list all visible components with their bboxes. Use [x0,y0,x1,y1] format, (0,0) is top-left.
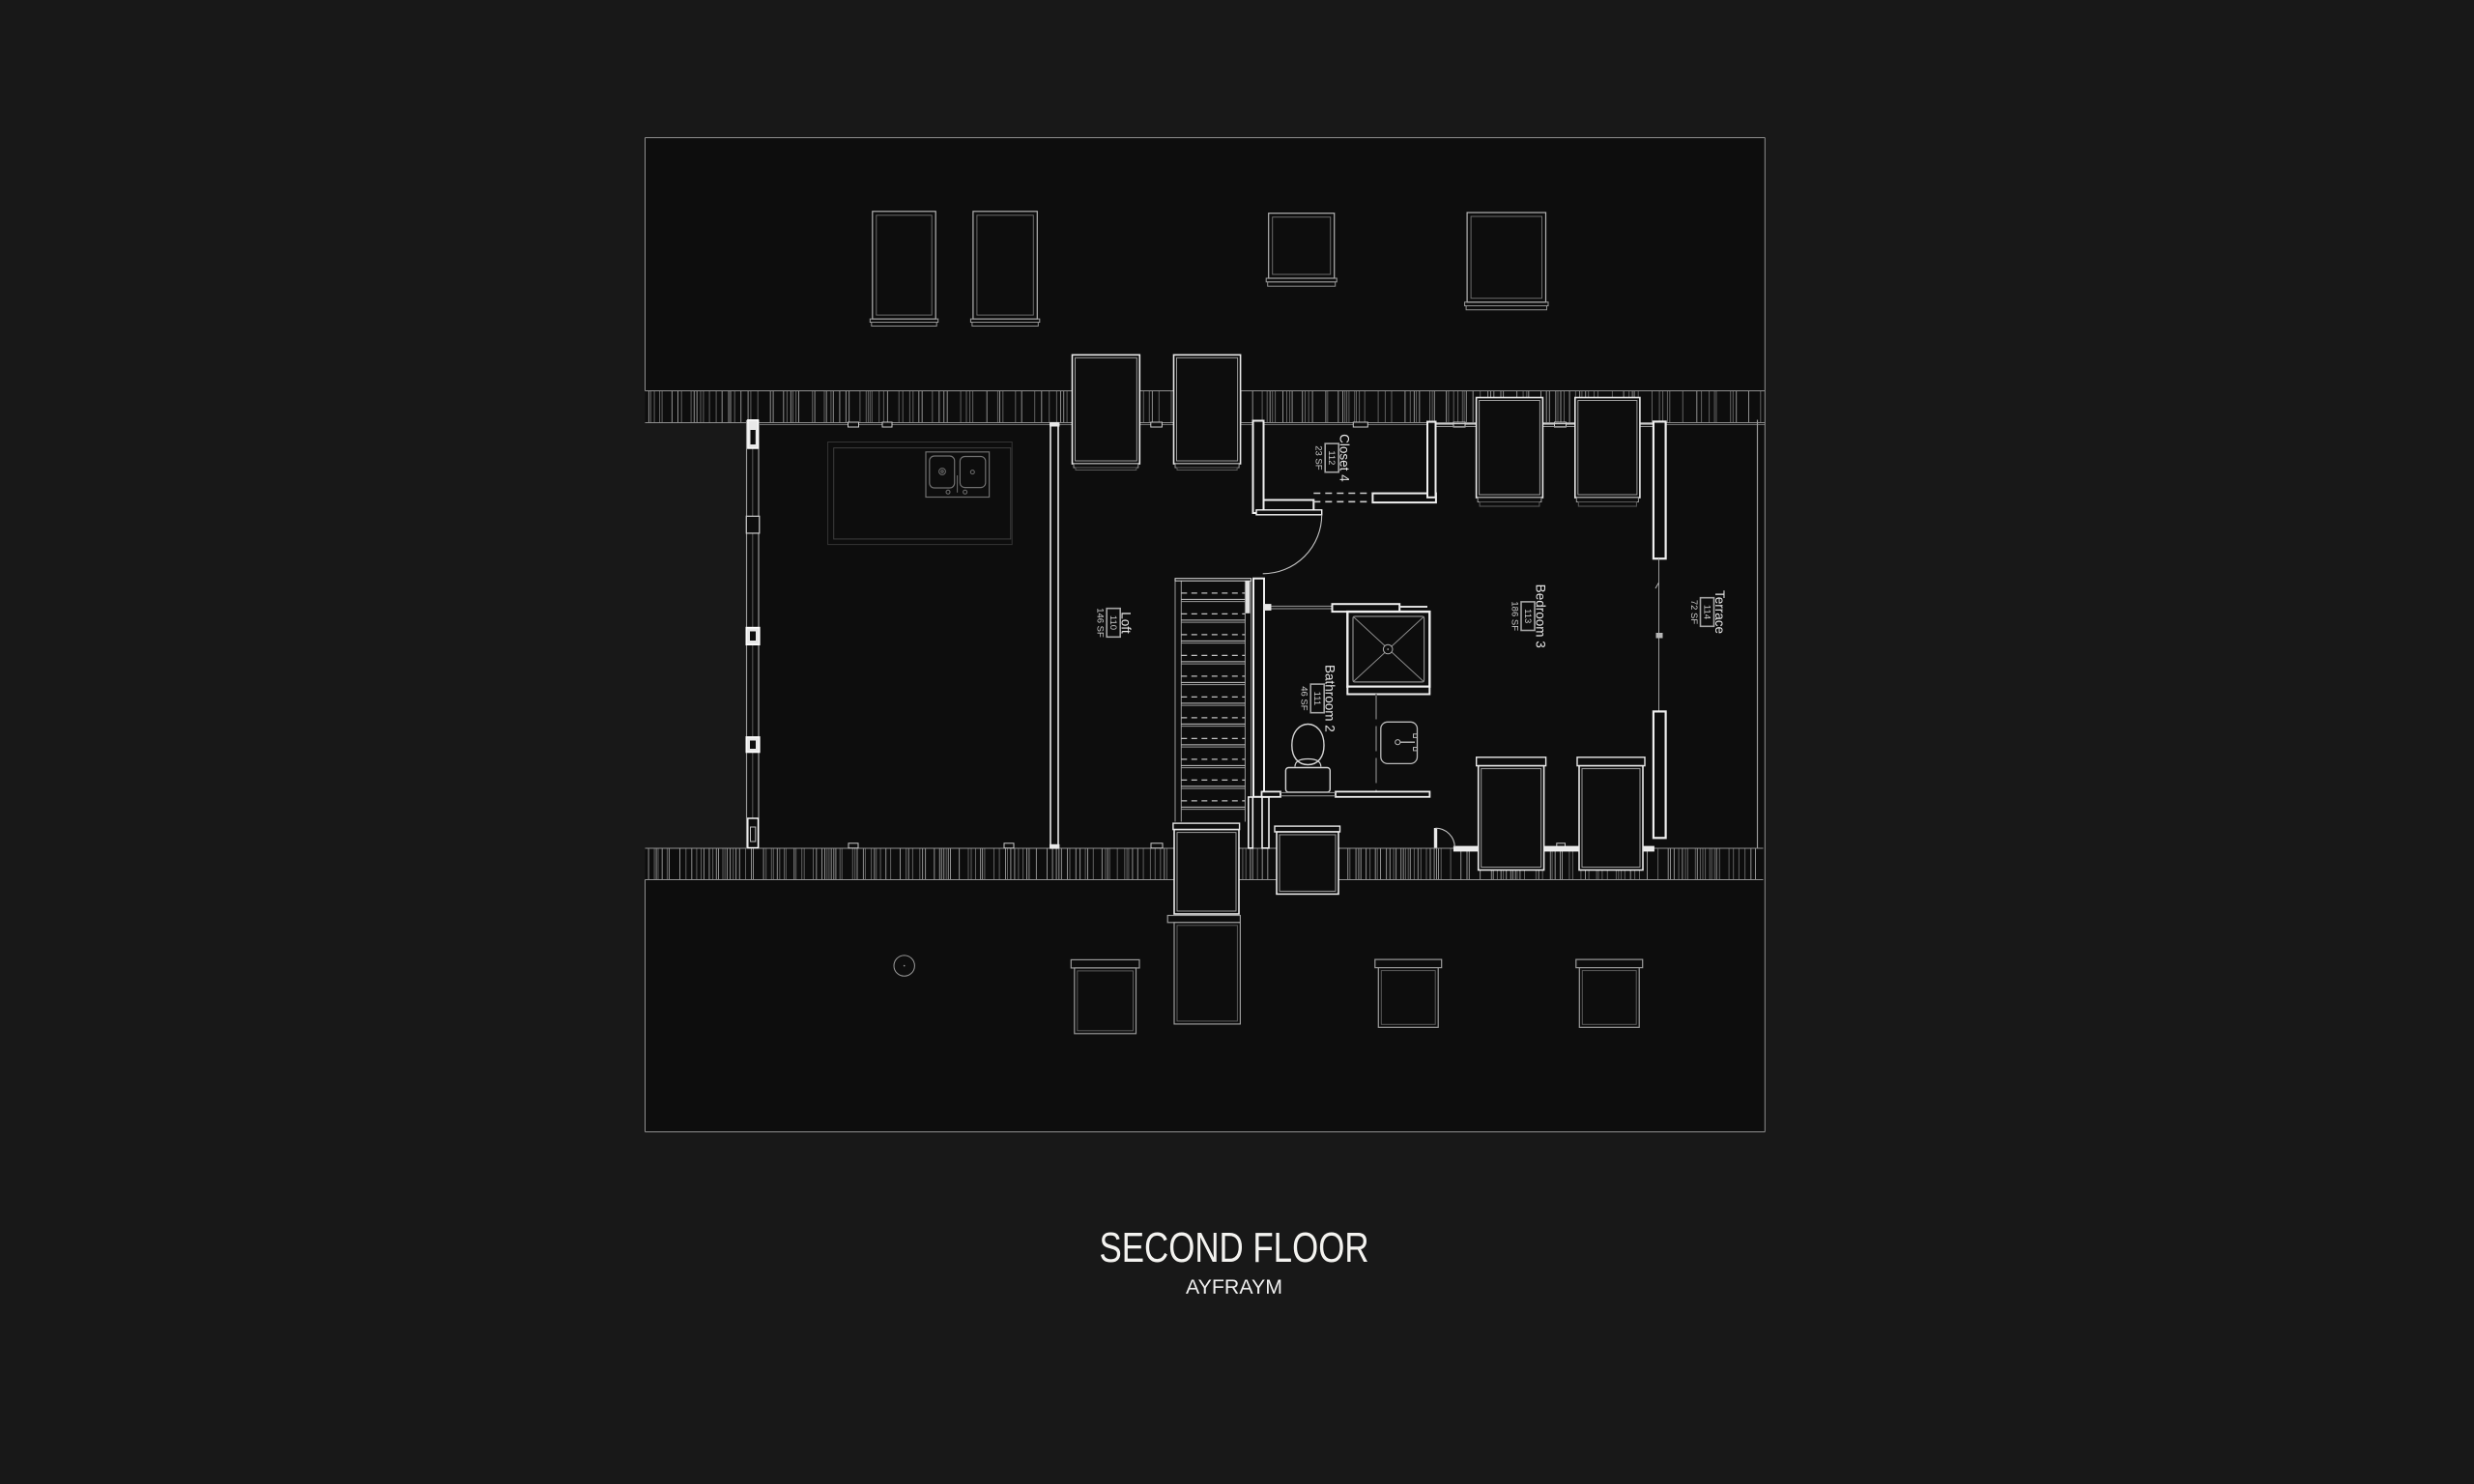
svg-text:111: 111 [1311,692,1322,705]
svg-text:SECOND FLOOR: SECOND FLOOR [1100,1224,1369,1271]
svg-text:72 SF: 72 SF [1688,600,1699,625]
svg-text:114: 114 [1701,605,1712,619]
svg-text:112: 112 [1326,450,1337,465]
svg-text:46 SF: 46 SF [1299,686,1309,711]
svg-text:186 SF: 186 SF [1510,601,1520,631]
svg-text:110: 110 [1108,615,1118,630]
svg-text:113: 113 [1522,609,1533,623]
svg-text:23 SF: 23 SF [1313,445,1324,471]
svg-text:AYFRAYM: AYFRAYM [1186,1276,1282,1298]
svg-text:146 SF: 146 SF [1095,608,1106,638]
